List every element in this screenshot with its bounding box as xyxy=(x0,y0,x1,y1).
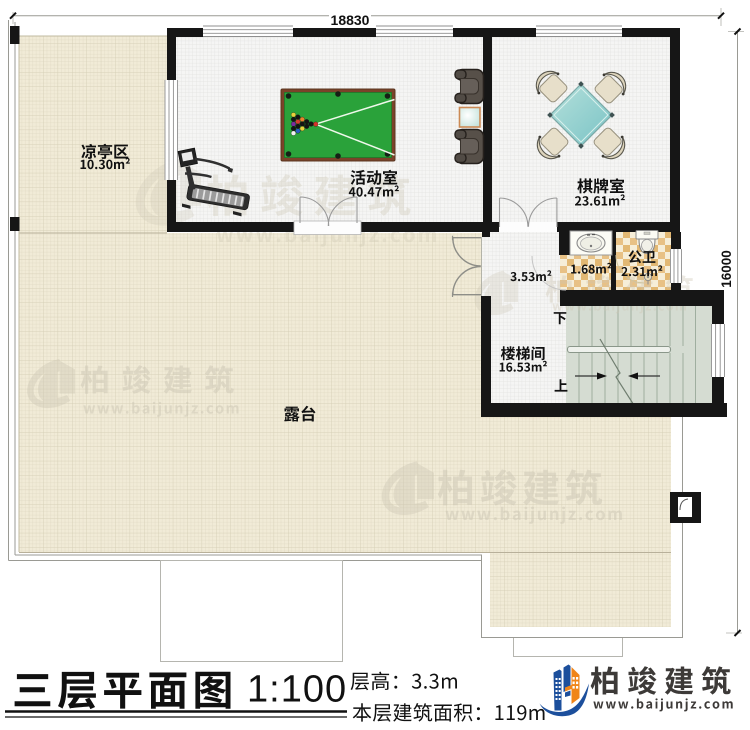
svg-text:1:100: 1:100 xyxy=(247,669,347,711)
svg-text:18830: 18830 xyxy=(331,12,370,28)
svg-text:16000: 16000 xyxy=(719,250,734,288)
